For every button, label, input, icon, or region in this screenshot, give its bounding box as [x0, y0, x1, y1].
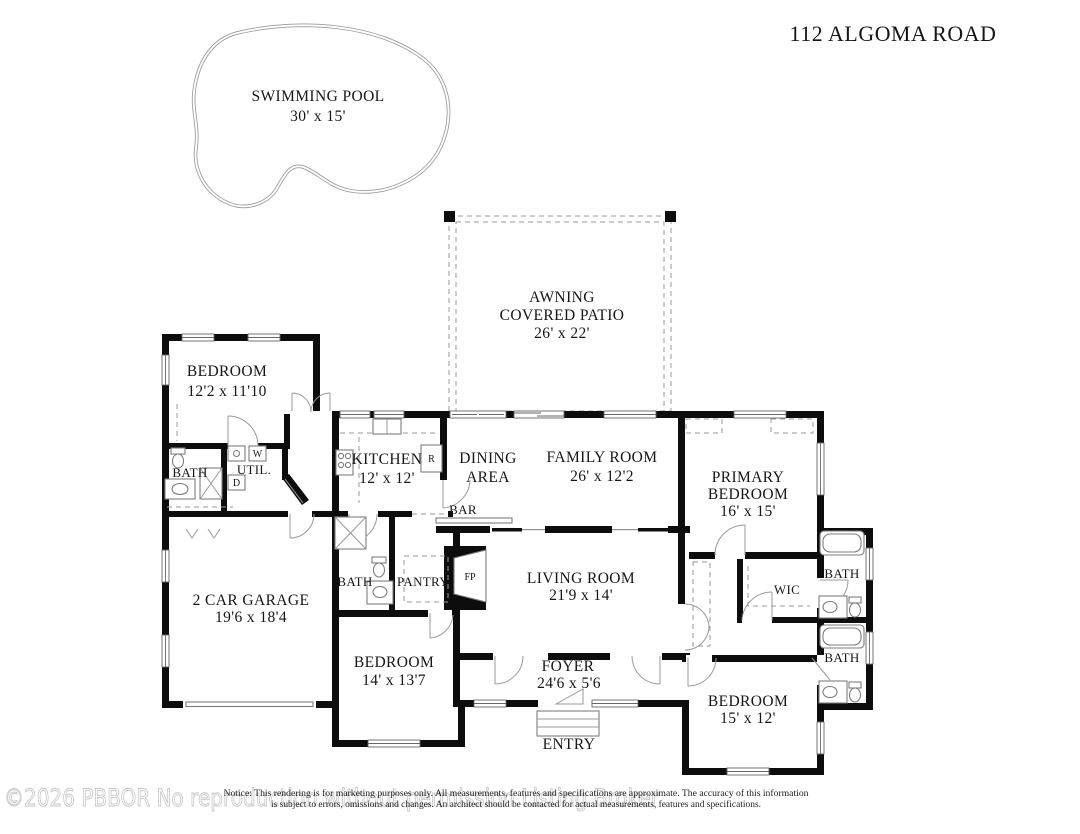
patio-label-line2: COVERED PATIO	[500, 307, 625, 324]
sliding-door	[514, 411, 564, 418]
window	[592, 700, 638, 707]
laundry-tub-icon	[228, 446, 245, 461]
sink-vanity-icon	[819, 596, 847, 618]
room-label-bedroom-top-left: BEDROOM	[187, 363, 267, 380]
entry-label: ENTRY	[543, 736, 596, 753]
toilet-icon	[849, 682, 861, 702]
door-arc	[715, 525, 745, 555]
room-label-primary-line1: PRIMARY	[712, 469, 785, 486]
window	[162, 635, 169, 667]
room-label-bath-right-upper: BATH	[824, 566, 859, 581]
primary-closet	[686, 419, 722, 433]
patio-label-line1: AWNING	[529, 289, 595, 306]
window	[182, 334, 214, 341]
room-label-dining-line1: DINING	[459, 450, 517, 467]
toilet-icon	[849, 597, 861, 617]
room-label-pantry: PANTRY	[397, 574, 449, 589]
room-dims-garage: 19'6 x 18'4	[215, 609, 287, 626]
patio-post-right	[665, 211, 676, 222]
toilet-icon	[372, 557, 386, 577]
room-label-bedroom-bottom-middle: BEDROOM	[354, 654, 434, 671]
door-arc	[228, 416, 258, 446]
door-arc	[632, 656, 660, 684]
room-dims-bedroom-bottom-middle: 14' x 13'7	[362, 672, 426, 689]
pool-label: SWIMMING POOL	[251, 88, 384, 105]
door-arc	[495, 656, 523, 684]
patio-dims: 26' x 22'	[534, 325, 590, 342]
bar-label: BAR	[449, 502, 477, 517]
awning-patio: AWNING COVERED PATIO 26' x 22'	[444, 211, 676, 411]
bar-counter	[436, 518, 512, 523]
pool-dims: 30' x 15'	[290, 108, 346, 125]
window	[248, 334, 280, 341]
window	[474, 700, 506, 707]
stove-icon	[336, 450, 353, 475]
washer-label: W	[253, 449, 263, 460]
disclaimer-line2: is subject to errors, omissions and chan…	[271, 799, 761, 809]
garage-door	[186, 702, 313, 707]
plan-title: 112 ALGOMA ROAD	[790, 21, 997, 46]
window	[162, 355, 169, 385]
room-dims-kitchen: 12' x 12'	[359, 470, 415, 487]
entry-steps-icon	[537, 711, 599, 736]
disclaimer-line1: Notice: This rendering is for marketing …	[224, 788, 810, 798]
window	[604, 411, 656, 418]
room-label-bath-hall: BATH	[337, 574, 372, 589]
window	[817, 443, 824, 495]
refrigerator-label: R	[428, 454, 435, 465]
window	[817, 722, 824, 754]
room-label-bedroom-bottom-right: BEDROOM	[708, 693, 788, 710]
window	[374, 411, 404, 418]
bathtub-icon	[820, 625, 864, 648]
room-label-dining-line2: AREA	[466, 469, 510, 486]
window	[162, 550, 169, 582]
window	[368, 740, 420, 747]
double-door-arc	[685, 604, 709, 650]
double-door-arc	[292, 393, 330, 412]
sink-vanity-icon	[165, 479, 195, 499]
room-label-wic: WIC	[774, 582, 800, 597]
swimming-pool: SWIMMING POOL 30' x 15'	[194, 25, 449, 206]
room-dims-living-room: 21'9 x 14'	[549, 587, 613, 604]
floorplan-page: SWIMMING POOL 30' x 15' AWNING COVERED P…	[0, 0, 1080, 834]
door-arc	[290, 514, 314, 538]
room-label-utility: UTIL.	[237, 462, 271, 477]
garage-door-ticks	[186, 529, 220, 538]
room-label-kitchen: KITCHEN	[352, 451, 423, 468]
kitchen-sink-icon	[373, 419, 401, 434]
room-dims-bedroom-top-left: 12'2 x 11'10	[187, 383, 267, 400]
room-label-bath-right-lower: BATH	[824, 650, 859, 665]
window	[340, 411, 370, 418]
room-label-living-room: LIVING ROOM	[527, 570, 635, 587]
shower-icon	[335, 517, 366, 549]
window	[866, 632, 873, 664]
room-label-foyer: FOYER	[542, 658, 595, 675]
dryer-label: D	[233, 478, 240, 489]
primary-closet	[771, 419, 813, 433]
room-dims-family-room: 26' x 12'2	[570, 468, 634, 485]
window	[727, 768, 769, 775]
bathtub-icon	[820, 531, 864, 555]
room-dims-foyer: 24'6 x 5'6	[537, 675, 601, 692]
room-label-garage: 2 CAR GARAGE	[193, 592, 310, 609]
window	[866, 548, 873, 580]
sink-vanity-icon	[819, 681, 847, 703]
room-dims-bedroom-bottom-right: 15' x 12'	[720, 710, 776, 727]
room-label-family-room: FAMILY ROOM	[547, 449, 658, 466]
french-door	[450, 411, 506, 418]
room-label-bath-top-left: BATH	[172, 465, 207, 480]
room-dims-primary: 16' x 15'	[720, 503, 776, 520]
room-label-primary-line2: BEDROOM	[708, 486, 788, 503]
floorplan-svg: SWIMMING POOL 30' x 15' AWNING COVERED P…	[0, 0, 1080, 834]
fireplace-label: FP	[464, 572, 476, 583]
door-arc	[688, 658, 716, 686]
patio-post-left	[444, 211, 455, 222]
window	[734, 411, 786, 418]
